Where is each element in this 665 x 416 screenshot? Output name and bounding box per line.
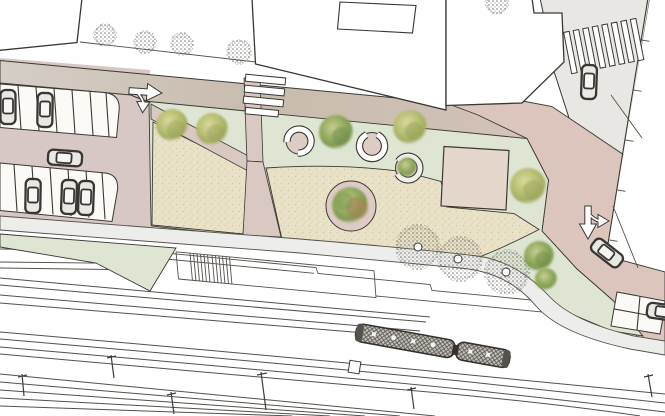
driving-car	[48, 149, 83, 166]
canopy-tree	[393, 110, 427, 144]
parked-car	[37, 93, 53, 127]
parked-car	[78, 181, 94, 216]
canopy-tree	[156, 109, 188, 141]
parked-car	[25, 179, 41, 213]
canopy-tree	[319, 115, 353, 149]
stippled-tree	[395, 224, 441, 270]
stippled-tree	[133, 30, 157, 54]
stippled-tree	[226, 39, 252, 65]
parking-row-top	[0, 84, 119, 138]
building-top-left	[0, 0, 82, 51]
site-plan	[0, 0, 665, 416]
parked-car	[1, 90, 16, 124]
pavilion-slab	[441, 147, 509, 211]
tree-planter	[286, 128, 312, 154]
plaza-center-tree	[332, 187, 368, 223]
planter-tree	[398, 158, 417, 177]
stippled-tree	[484, 249, 530, 295]
parked-car	[61, 180, 77, 215]
stippled-tree	[437, 236, 483, 282]
canopy-tree	[535, 268, 557, 290]
canopy-tree	[510, 168, 546, 204]
stippled-tree	[93, 23, 117, 47]
canopy-tree	[196, 113, 228, 145]
tree-planter	[359, 133, 386, 160]
driving-car	[581, 65, 597, 100]
stippled-tree	[170, 32, 194, 56]
track-marker-square	[348, 360, 361, 374]
